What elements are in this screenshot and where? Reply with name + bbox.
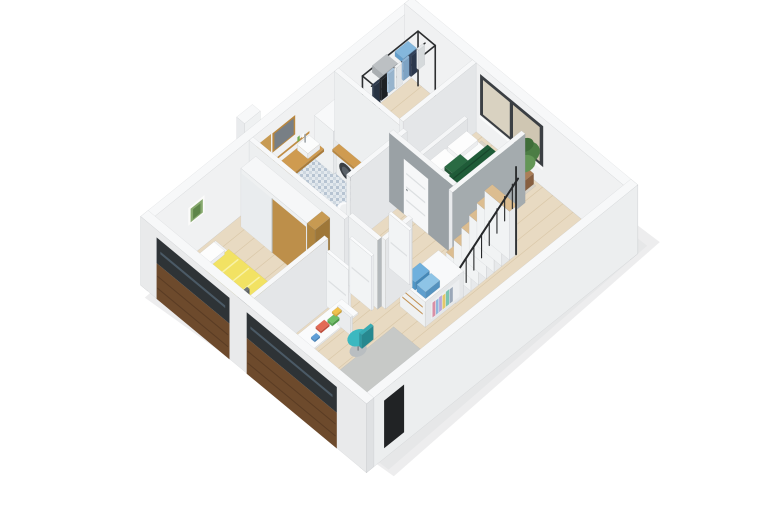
hanging-garment-7 (417, 44, 425, 70)
book-spine-5 (446, 289, 449, 306)
hanging-garment-6 (409, 50, 417, 77)
book-spine-2 (436, 298, 439, 314)
hanging-garment-4 (394, 62, 402, 89)
hanging-garment-2 (380, 74, 388, 101)
book-spine-1 (433, 300, 436, 317)
book-spine-3 (439, 295, 442, 312)
isometric-scene-svg (0, 0, 768, 512)
book-spine-4 (443, 293, 446, 309)
floor-plan-render (0, 0, 768, 512)
hanging-garment-3 (387, 68, 395, 94)
book-spine-6 (450, 287, 453, 304)
